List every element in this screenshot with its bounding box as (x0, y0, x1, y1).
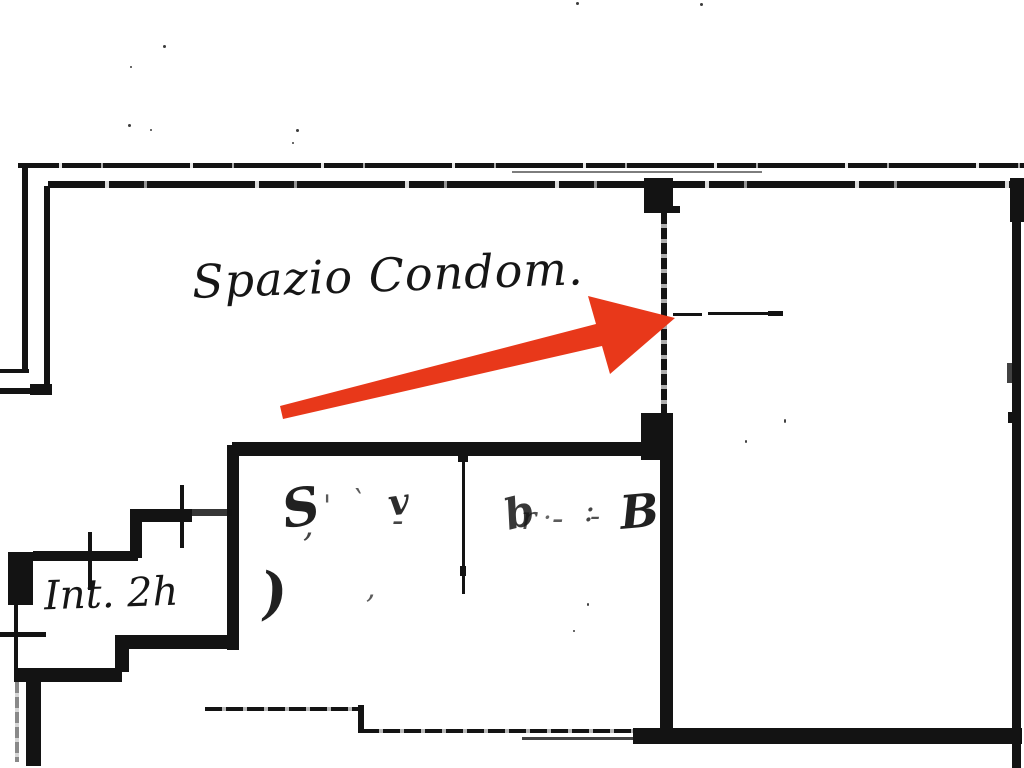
wall-right-corner (1010, 178, 1024, 222)
handwriting-fragment: , (303, 508, 314, 542)
cross-mark-3-vert (14, 604, 18, 670)
label-spazio-condominiale: Spazio Condom. (191, 245, 584, 305)
handwriting-fragment: ) (258, 563, 290, 621)
handwriting-fragment: B (618, 487, 661, 536)
red-arrow (280, 296, 675, 419)
handwriting-fragment: - (590, 502, 600, 532)
floor-plan-scan: Spazio Condom. Int. 2h S,'`v-), br·-:-B (0, 0, 1024, 768)
handwriting-fragment: S (278, 479, 324, 537)
pier-black-rect (8, 552, 33, 605)
wall-top-echo (512, 171, 762, 173)
stair-wall-mid (33, 551, 138, 561)
wall-bottom-echo (522, 737, 636, 740)
mid-wall-thin-upper (661, 213, 667, 314)
handwriting-fragment: - (552, 502, 564, 536)
wall-top-inner (48, 181, 1012, 188)
wall-left-inner (44, 186, 50, 393)
wall-right-tick1 (1007, 363, 1012, 383)
wall-center-horizontal (232, 442, 673, 456)
scan-speck (150, 129, 152, 131)
mid-wall-tick (672, 206, 680, 213)
mid-wall-top-blob (644, 178, 673, 213)
wall-bottom-thin2 (362, 729, 636, 733)
wall-left-vertical-big (227, 445, 239, 650)
scan-speck (573, 630, 575, 632)
scan-speck (576, 2, 579, 5)
room-divider-blob1 (458, 448, 468, 462)
scan-speck (745, 440, 747, 443)
scan-speck (292, 142, 294, 144)
wall-bottom-thin1 (205, 707, 362, 711)
step-wall-upper (115, 635, 238, 649)
wall-right (1012, 178, 1021, 768)
scan-speck (163, 45, 166, 48)
cross-mark-3-horiz (0, 632, 46, 637)
wall-left-outer (22, 165, 28, 371)
label-int-2h: Int. 2h (43, 572, 179, 617)
scan-speck (700, 3, 703, 6)
scan-speck (784, 419, 786, 423)
stair-wall-top-thin (190, 509, 232, 516)
left-bottom-thin (15, 682, 19, 762)
wall-right-tick2 (1008, 412, 1021, 423)
handwriting-fragment: · (543, 504, 552, 532)
scan-speck (130, 66, 132, 68)
annotation-arrow-layer (0, 0, 1024, 768)
scan-speck (128, 124, 131, 127)
handwriting-fragment: ` (350, 488, 365, 518)
cross-mark-2 (180, 485, 184, 548)
mid-wall-thin-lower (661, 314, 667, 414)
ref-line-left (598, 312, 612, 315)
left-bottom-bar (26, 668, 41, 766)
mid-wall-thick (660, 458, 673, 744)
wall-top-outer (18, 163, 1024, 168)
handwriting-fragment: r (521, 502, 536, 534)
room-divider-blob2 (460, 566, 466, 576)
notch-corner-blob (30, 384, 52, 395)
scan-speck (587, 603, 589, 606)
ref-line-end (768, 311, 783, 316)
scan-speck (296, 129, 299, 132)
wall-bottom-thick (633, 728, 1022, 744)
notch-line-upper (0, 369, 29, 373)
ref-line-b (708, 312, 770, 315)
handwriting-fragment: ' (323, 492, 331, 522)
ref-line-a (673, 313, 702, 316)
handwriting-fragment: , (366, 574, 376, 604)
handwriting-fragment: - (392, 504, 404, 538)
